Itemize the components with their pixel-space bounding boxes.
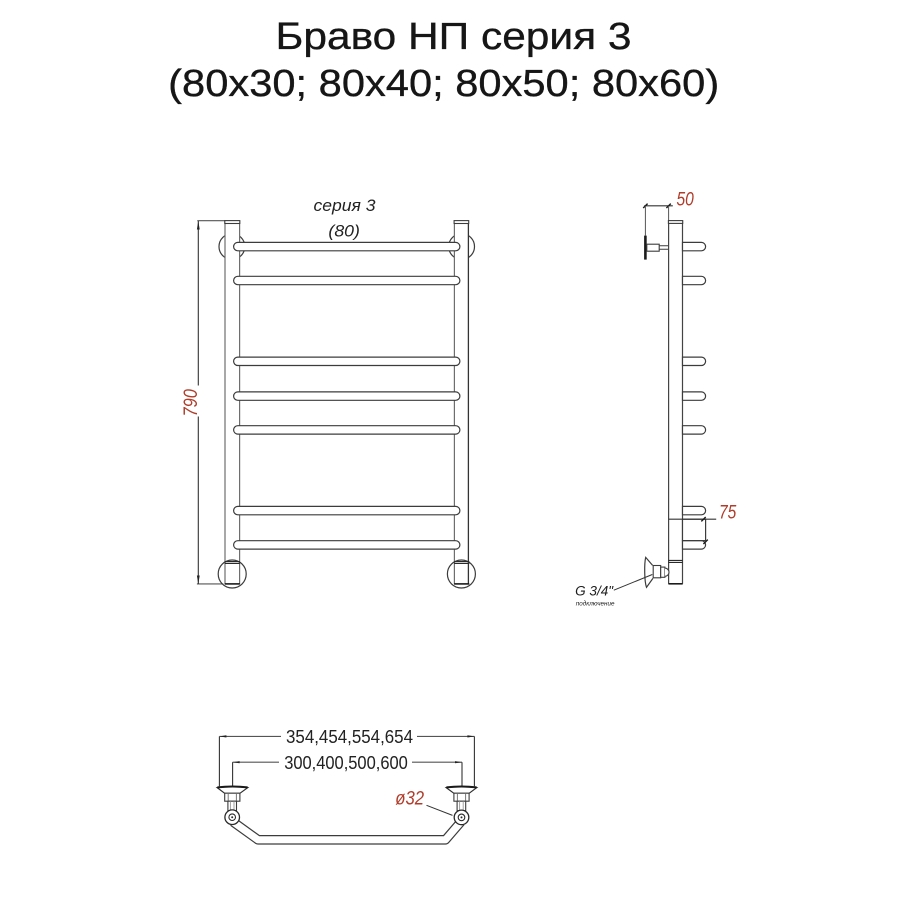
svg-text:(80): (80) xyxy=(328,221,360,240)
svg-text:Браво НП серия 3: Браво НП серия 3 xyxy=(276,16,632,58)
svg-text:подключение: подключение xyxy=(576,599,615,607)
svg-text:50: 50 xyxy=(677,189,694,211)
svg-text:354,454,554,654: 354,454,554,654 xyxy=(286,726,413,747)
svg-text:ø32: ø32 xyxy=(395,788,424,809)
svg-text:790: 790 xyxy=(180,389,202,416)
svg-text:G 3/4": G 3/4" xyxy=(575,584,614,599)
svg-text:300,400,500,600: 300,400,500,600 xyxy=(284,752,408,773)
svg-text:(80х30; 80х40; 80х50; 80х60): (80х30; 80х40; 80х50; 80х60) xyxy=(168,63,719,105)
svg-text:серия 3: серия 3 xyxy=(314,196,377,215)
svg-text:75: 75 xyxy=(719,501,736,523)
